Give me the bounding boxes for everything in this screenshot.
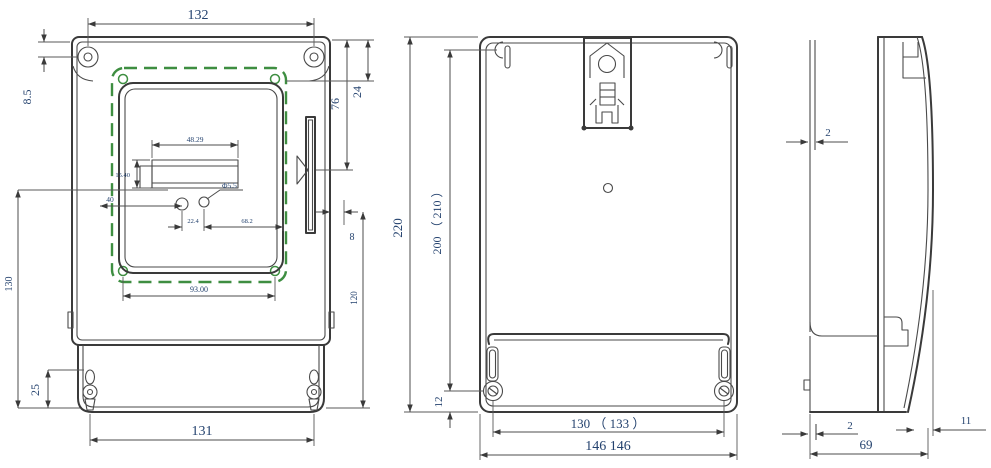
bracket-fork (596, 105, 618, 123)
button-left (176, 198, 188, 210)
side-view: 2 2 69 11 (782, 37, 986, 459)
dim-side-depth: 69 (810, 414, 928, 459)
side-front-curve-inner (904, 37, 928, 408)
bracket-endpoint (629, 126, 634, 131)
screw-boss-bracket (309, 66, 329, 81)
window-frame-outer (119, 83, 283, 273)
dim-label: 130 （ 133 ） (571, 416, 646, 431)
dim-label: 22.4 (187, 218, 199, 225)
side-latch-step (884, 317, 908, 346)
screw-boss-circle (78, 47, 98, 67)
rear-corner-hooks (495, 42, 732, 68)
seal-nut-hole (312, 390, 317, 395)
screw-boss-circle (304, 47, 324, 67)
dim-label: 8.5 (20, 90, 34, 105)
dim-label: 69 (860, 437, 873, 452)
side-slot-inner (309, 120, 313, 230)
screw-boss-bracket (73, 66, 93, 81)
dim-seal-span: 93.00 (123, 277, 275, 301)
dim-label: 15.40 (115, 172, 130, 179)
dim-right-height: 120 (326, 212, 370, 408)
screw-hole-circle (84, 53, 92, 61)
dim-label: 2 (825, 127, 831, 139)
dim-side-top-gap: 2 (786, 127, 848, 142)
dim-label: 200 （ 210 ） (430, 185, 444, 254)
rear-center-hole (604, 184, 613, 193)
dim-label: Φ5.5 (222, 181, 237, 190)
dim-label: 25 (28, 384, 42, 396)
lcd-step (140, 166, 152, 188)
rear-case-outline (480, 37, 737, 412)
seal-wire-loop (310, 370, 319, 384)
seal-bolt (309, 399, 319, 410)
bracket-endpoint (582, 126, 587, 131)
front-terminal-cover (78, 345, 324, 412)
dim-label: 11 (961, 415, 972, 427)
hanging-bracket (582, 38, 634, 131)
dim-label: 220 (390, 218, 405, 238)
dim-side-bottom-gap: 2 (782, 420, 858, 440)
dim-rear-screw-bottom-offset: 12 (433, 377, 450, 428)
dim-label: 146 146 (585, 439, 631, 454)
dim-label: 48.29 (187, 135, 204, 144)
dim-button-span: 68.2 (218, 218, 283, 231)
dim-label: 8 (350, 232, 355, 243)
dim-label: 68.2 (241, 218, 252, 225)
window-frame-inner (125, 89, 277, 267)
rear-left-slot-inner (490, 350, 496, 378)
seal-bolt (85, 399, 95, 410)
bracket-ladder (600, 83, 615, 105)
dim-label: 120 (349, 291, 359, 305)
dim-button-offset: 22.4 (168, 209, 218, 231)
dim-lcd-height: 15.40 (115, 160, 150, 188)
dim-label: 130 (4, 277, 15, 292)
dim-label: 76 (328, 98, 342, 110)
side-front-curve (908, 37, 933, 412)
front-view: 132 8.5 76 24 40 48.29 (4, 8, 374, 446)
dim-edge-gap: 8 (316, 200, 358, 243)
dim-lcd-width: 48.29 (152, 135, 238, 158)
side-seal-screw-bump (804, 380, 810, 390)
dim-label: 12 (433, 397, 445, 408)
front-terminal-cover-inner (83, 345, 319, 407)
bracket-shoulders (590, 99, 624, 105)
drawing-canvas: 132 8.5 76 24 40 48.29 (0, 0, 991, 468)
rear-left-slot (487, 347, 498, 381)
meter-dimension-drawing: 132 8.5 76 24 40 48.29 (0, 0, 991, 468)
front-case-inner-line (77, 42, 325, 340)
dim-top-offset: 8.5 (20, 29, 77, 105)
screw-hole-circle (310, 53, 318, 61)
dim-label: 2 (847, 420, 853, 432)
dim-label: 24 (350, 86, 364, 98)
seal-gasket-dashed (112, 68, 286, 282)
dim-rear-mount-height: 200 （ 210 ） (430, 50, 497, 391)
terminal-band (488, 334, 729, 344)
seal-nut-hole (88, 390, 93, 395)
keyhole-circle (599, 56, 616, 73)
seal-nut (83, 385, 97, 399)
dim-label: 93.00 (190, 285, 208, 294)
dim-bottom-offset: 25 (28, 370, 84, 408)
dim-label: 40 (106, 195, 114, 204)
rear-right-slot (719, 347, 730, 381)
rear-right-slot-inner (722, 350, 728, 378)
dim-label: 132 (188, 8, 209, 23)
dim-bottom-screw-span: 131 (90, 414, 314, 446)
side-slot-bar (306, 117, 315, 233)
seal-corner-hole (119, 75, 128, 84)
dim-top-screw-span: 132 (88, 8, 314, 46)
seal-wire-loop (86, 370, 95, 384)
dim-side-front-offset: 11 (896, 290, 986, 436)
rear-view: 220 200 （ 210 ） 12 130 （ 133 ） 146 146 (390, 37, 737, 460)
side-terminal-cover-top (810, 322, 878, 336)
dim-label: 131 (192, 424, 213, 439)
seal-corner-hole (271, 75, 280, 84)
